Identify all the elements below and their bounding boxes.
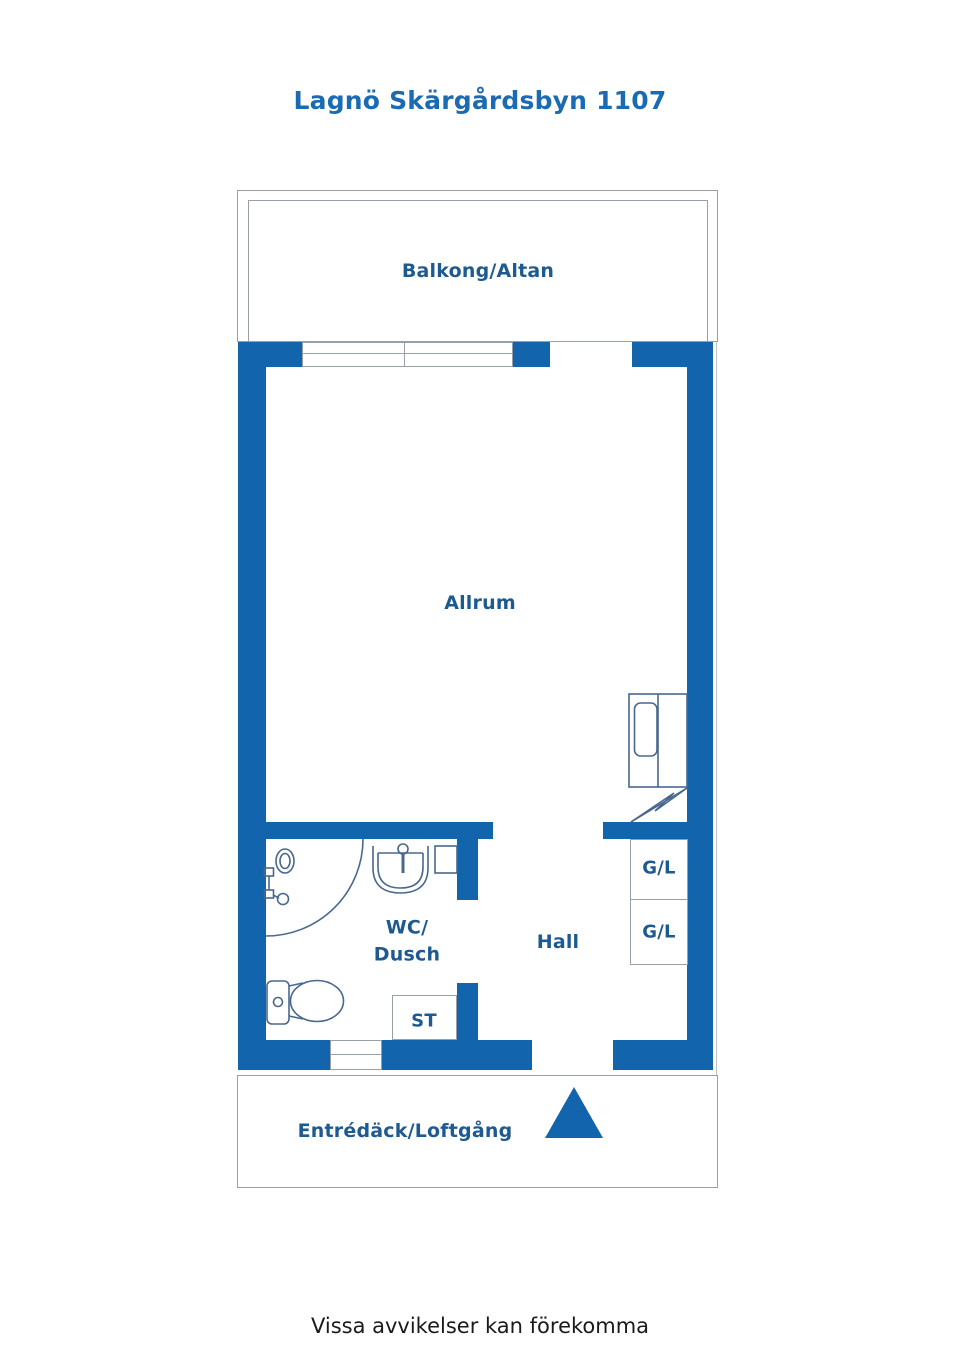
window-bathroom	[330, 1040, 382, 1070]
shower-icon	[265, 839, 364, 936]
window-line	[331, 1054, 381, 1055]
wall-bottom-left	[238, 1040, 330, 1070]
wall-bottom-right	[613, 1040, 713, 1070]
disclaimer-text: Vissa avvikelser kan förekomma	[0, 1314, 960, 1338]
room-label-wc-line1: WC/	[374, 914, 440, 941]
bathroom-cabinet-icon	[435, 846, 457, 873]
wall-hall-divider	[603, 822, 687, 839]
heater-icon	[631, 788, 687, 822]
room-label-gl-top: G/L	[642, 858, 675, 879]
washbasin-icon	[373, 844, 428, 893]
wall-right	[687, 342, 713, 1070]
wall-bottom-mid	[382, 1040, 532, 1070]
room-label-wc-dusch: WC/ Dusch	[374, 914, 440, 967]
room-label-entrance-deck: Entrédäck/Loftgång	[298, 1120, 513, 1142]
exterior-outline-line	[716, 342, 717, 1075]
room-label-living: Allrum	[444, 592, 516, 614]
wall-left	[238, 342, 266, 1070]
wall-bathroom-right-upper	[457, 839, 478, 900]
wall-bathroom-top	[238, 822, 493, 839]
window-living-room	[302, 342, 513, 367]
toilet-icon	[267, 981, 344, 1025]
wall-bathroom-right-lower	[457, 983, 478, 1040]
room-label-wc-line2: Dusch	[374, 941, 440, 968]
window-mullion	[404, 343, 405, 366]
wardrobe-unit-icon	[629, 694, 687, 787]
room-label-gl-bottom: G/L	[642, 922, 675, 943]
window-line	[303, 353, 512, 354]
room-label-balcony: Balkong/Altan	[402, 260, 554, 282]
floor-plan: Balkong/Altan Allrum WC/ Dusch Hall G/L …	[0, 0, 960, 1358]
wall-top-mid	[513, 342, 550, 367]
room-label-st: ST	[411, 1011, 437, 1032]
room-label-hall: Hall	[537, 931, 580, 953]
